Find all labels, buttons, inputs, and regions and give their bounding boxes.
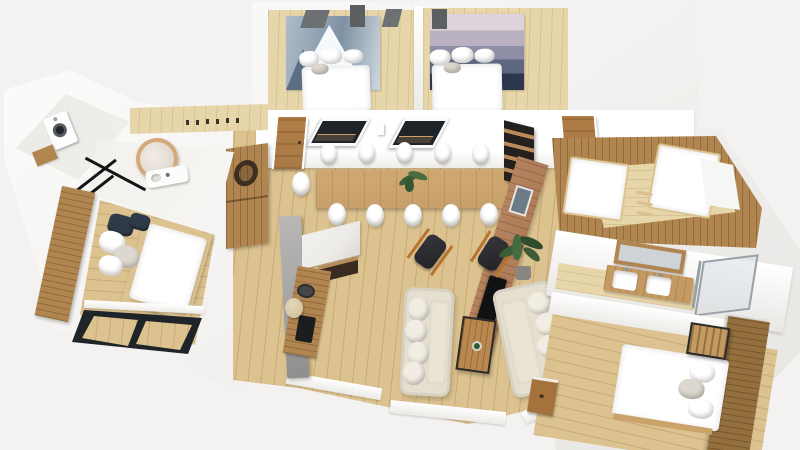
hall-wardrobe[interactable] [226,143,268,249]
sauna-bench[interactable] [562,156,629,222]
pillow [474,49,494,63]
ladder-step [636,190,652,196]
pillow [343,49,363,64]
hook [186,120,189,125]
throw-pillow [311,63,328,75]
basin [150,173,161,183]
hook [226,118,229,123]
wardrobe-panel[interactable] [350,5,365,27]
sofa-seat [426,300,450,385]
dining-chair[interactable] [366,204,384,227]
sink [645,275,672,297]
wreath[interactable] [234,158,258,187]
dining-chair[interactable] [442,204,460,227]
door-handle [298,141,301,144]
duvet [432,63,503,112]
green-bowl [471,340,482,351]
shower-glass[interactable] [694,254,759,316]
sofa-cushion [402,361,426,386]
stool[interactable] [285,298,303,318]
throw-pillow [444,62,461,73]
hook [196,120,199,125]
bedside-crate[interactable] [686,322,731,360]
plant-pot [515,266,531,280]
tap [165,173,170,178]
hook [216,119,219,124]
ladder-step [637,211,653,217]
door[interactable] [272,117,309,169]
dining-chair[interactable] [434,142,451,164]
wardrobe-divider [226,195,268,203]
leaf [405,178,414,192]
ladder-step [636,201,652,207]
wall-thermostat[interactable] [377,124,384,135]
dining-chair[interactable] [292,172,310,196]
hook [236,118,239,123]
sofa[interactable] [399,287,455,397]
dining-chair[interactable] [480,203,498,226]
pillow [451,47,473,63]
sofa-cushion [404,319,428,344]
wall-art-frame[interactable] [508,185,533,217]
wardrobe-panel[interactable] [432,9,447,29]
double-bed[interactable] [423,45,510,114]
dining-chair[interactable] [404,204,422,227]
pillow [320,48,343,65]
divider-wall [414,6,423,112]
double-bed[interactable] [293,47,379,116]
dining-chair[interactable] [472,143,489,165]
dining-chair[interactable] [328,203,346,226]
window-sill [314,134,356,141]
dresser-handle [539,394,543,398]
leaf [512,234,522,260]
potted-plant[interactable] [498,232,546,282]
washer-knob [53,116,58,121]
dining-chair[interactable] [358,142,375,164]
washer-door [51,121,69,139]
dining-chair[interactable] [396,142,413,164]
floorplan-3d-view[interactable] [0,0,800,450]
sofa-cushion [407,297,430,322]
hook [206,119,209,124]
dining-chair[interactable] [320,143,337,165]
plant-centerpiece[interactable] [396,168,432,194]
dresser[interactable] [527,376,558,416]
sink [612,270,639,292]
coat-hooks[interactable] [186,118,244,128]
